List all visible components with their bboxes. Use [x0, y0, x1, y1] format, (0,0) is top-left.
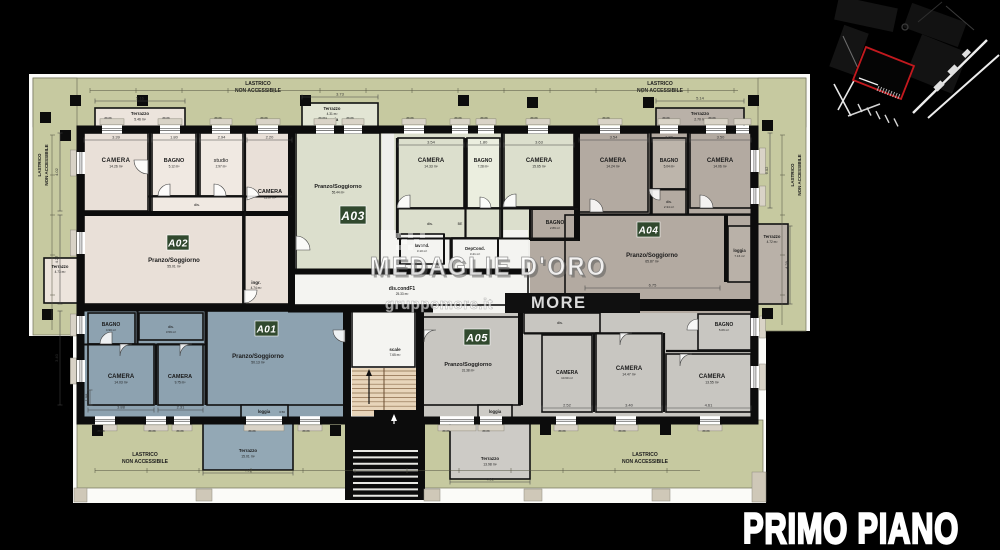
svg-text:7.65 m²: 7.65 m² [390, 353, 401, 357]
svg-text:88 88: 88 88 [709, 116, 716, 120]
svg-text:Terrazzo: Terrazzo [324, 106, 341, 111]
svg-text:5.46 m²: 5.46 m² [134, 118, 146, 122]
svg-text:88 88: 88 88 [559, 429, 566, 433]
svg-text:50.13 m²: 50.13 m² [251, 361, 265, 365]
svg-text:Pranzo/Soggiorno: Pranzo/Soggiorno [232, 354, 284, 360]
svg-text:15.65 m²: 15.65 m² [532, 165, 546, 169]
svg-text:3.50: 3.50 [279, 410, 285, 414]
svg-text:10.60 m²: 10.60 m² [561, 376, 573, 380]
svg-text:dis.: dis. [427, 221, 433, 226]
svg-text:14.24 m²: 14.24 m² [606, 165, 620, 169]
svg-text:88 88: 88 88 [261, 116, 268, 120]
svg-text:2.89 m²: 2.89 m² [550, 226, 560, 230]
svg-text:A02: A02 [167, 239, 188, 250]
svg-text:MEDAGLIE D'ORO: MEDAGLIE D'ORO [370, 253, 607, 281]
svg-text:88 88: 88 88 [531, 116, 538, 120]
svg-text:dis.: dis. [666, 199, 672, 204]
svg-text:14.26 m²: 14.26 m² [109, 165, 123, 169]
svg-text:dis.: dis. [168, 324, 174, 329]
svg-text:88 88: 88 88 [407, 116, 414, 120]
svg-text:5.06 m²: 5.06 m² [719, 328, 729, 332]
svg-text:88 88: 88 88 [105, 116, 112, 120]
svg-text:7.28 m²: 7.28 m² [478, 165, 489, 169]
svg-text:NON ACCESSIBILE: NON ACCESSIBILE [797, 154, 802, 195]
svg-text:NON ACCESSIBILE: NON ACCESSIBILE [44, 144, 49, 185]
svg-text:loggia: loggia [258, 409, 271, 414]
svg-text:A03: A03 [340, 209, 365, 223]
svg-text:3.39: 3.39 [112, 135, 121, 140]
svg-text:88 88: 88 88 [149, 429, 156, 433]
svg-text:Terrazzo: Terrazzo [691, 111, 709, 116]
svg-text:CAMERA: CAMERA [168, 374, 192, 380]
svg-text:2.20: 2.20 [266, 135, 275, 140]
svg-text:3.50: 3.50 [717, 135, 726, 140]
svg-text:5.14: 5.14 [696, 96, 705, 101]
svg-text:PRIMO PIANO: PRIMO PIANO [743, 504, 959, 550]
svg-text:1.80: 1.80 [665, 135, 674, 140]
svg-text:88 88: 88 88 [481, 116, 488, 120]
svg-text:LASTRICO: LASTRICO [632, 452, 658, 458]
svg-text:6.75: 6.75 [649, 283, 658, 288]
svg-text:15.01 m²: 15.01 m² [241, 455, 255, 459]
svg-text:3.40: 3.40 [625, 403, 634, 408]
svg-text:loggia: loggia [489, 409, 502, 414]
svg-text:55.44 m²: 55.44 m² [332, 191, 345, 195]
svg-text:4.02: 4.02 [54, 167, 59, 176]
svg-text:CAMERA: CAMERA [526, 158, 553, 164]
svg-text:7.16 m²: 7.16 m² [734, 254, 744, 258]
svg-text:9.75 m²: 9.75 m² [175, 381, 186, 385]
svg-text:NON ACCESSIBILE: NON ACCESSIBILE [637, 88, 684, 94]
svg-text:88 88: 88 88 [703, 429, 710, 433]
svg-text:88 88: 88 88 [177, 429, 184, 433]
svg-text:14.06 m²: 14.06 m² [713, 165, 727, 169]
svg-text:88 88: 88 88 [603, 116, 610, 120]
svg-text:Pranzo/Soggiorno: Pranzo/Soggiorno [148, 258, 200, 264]
svg-text:88 88: 88 88 [455, 116, 462, 120]
svg-text:BAGNO: BAGNO [474, 158, 493, 164]
svg-text:1.80: 1.80 [480, 140, 489, 145]
svg-text:88 88: 88 88 [619, 429, 626, 433]
svg-text:CAMERA: CAMERA [616, 366, 643, 372]
svg-text:55.01 m²: 55.01 m² [167, 265, 181, 269]
svg-text:4.27: 4.27 [54, 255, 59, 264]
svg-text:Terrazzo: Terrazzo [131, 111, 149, 116]
svg-text:dis.: dis. [557, 320, 563, 325]
svg-text:5.16: 5.16 [136, 96, 145, 101]
svg-text:3.73: 3.73 [336, 92, 345, 97]
svg-text:Terrazzo: Terrazzo [481, 456, 499, 461]
svg-text:65.87 m²: 65.87 m² [645, 260, 659, 264]
svg-text:NON ACCESSIBILE: NON ACCESSIBILE [235, 88, 282, 94]
svg-text:4.92: 4.92 [486, 477, 495, 482]
svg-text:LASTRICO: LASTRICO [245, 81, 271, 87]
svg-text:studio: studio [214, 158, 229, 164]
svg-text:DepCond.: DepCond. [465, 246, 485, 251]
svg-text:A05: A05 [465, 332, 488, 344]
svg-text:CAMERA: CAMERA [102, 158, 131, 164]
svg-text:A01: A01 [256, 325, 277, 336]
svg-text:4.92: 4.92 [244, 468, 253, 473]
svg-text:88 88: 88 88 [303, 429, 310, 433]
svg-text:loggia: loggia [733, 248, 746, 253]
svg-text:3.54: 3.54 [427, 140, 436, 145]
svg-text:3.54: 3.54 [610, 135, 619, 140]
svg-text:14.03 m²: 14.03 m² [114, 381, 128, 385]
svg-text:2.31: 2.31 [177, 405, 186, 410]
svg-text:13.98 m²: 13.98 m² [483, 463, 497, 467]
svg-text:2.52: 2.52 [563, 403, 572, 408]
svg-text:LASTRICO: LASTRICO [132, 452, 158, 458]
svg-text:dis.: dis. [194, 202, 200, 207]
svg-text:3.59 m²: 3.59 m² [166, 330, 176, 334]
svg-text:6.02: 6.02 [764, 166, 769, 175]
svg-text:LASTRICO: LASTRICO [790, 163, 795, 186]
svg-text:CAMERA: CAMERA [707, 158, 734, 164]
svg-text:4.61: 4.61 [705, 403, 714, 408]
svg-text:Pranzo/Soggiorno: Pranzo/Soggiorno [314, 184, 362, 190]
svg-text:NON ACCESSIBILE: NON ACCESSIBILE [122, 459, 169, 465]
svg-text:LASTRICO: LASTRICO [37, 153, 42, 176]
svg-text:gruppomore.it: gruppomore.it [385, 296, 493, 313]
svg-text:MORE: MORE [531, 294, 587, 312]
svg-text:1.98: 1.98 [84, 393, 89, 402]
svg-text:4.29: 4.29 [784, 260, 789, 269]
svg-text:4.90 m²: 4.90 m² [106, 328, 116, 332]
svg-text:88 88: 88 88 [319, 116, 326, 120]
svg-text:88 88: 88 88 [163, 116, 170, 120]
svg-text:31.38 m²: 31.38 m² [462, 369, 475, 373]
svg-text:4.74 m²: 4.74 m² [251, 286, 262, 290]
svg-text:13.55 m²: 13.55 m² [705, 381, 719, 385]
svg-text:2.34 m²: 2.34 m² [664, 205, 674, 209]
svg-text:5.04 m²: 5.04 m² [664, 165, 675, 169]
svg-text:CAMERA: CAMERA [600, 158, 627, 164]
svg-text:A04: A04 [638, 226, 659, 237]
svg-text:3.63: 3.63 [535, 140, 544, 145]
svg-text:14.47 m²: 14.47 m² [622, 373, 636, 377]
svg-text:CAMERA: CAMERA [108, 374, 135, 380]
svg-text:88 88: 88 88 [215, 116, 222, 120]
svg-text:2.97 m²: 2.97 m² [216, 165, 227, 169]
svg-text:CAMERA: CAMERA [258, 189, 282, 195]
svg-text:Pranzo/Soggiorno: Pranzo/Soggiorno [444, 362, 492, 368]
svg-text:Pranzo/Soggiorno: Pranzo/Soggiorno [626, 253, 678, 259]
svg-text:BAGNO: BAGNO [660, 158, 679, 164]
svg-text:88 88: 88 88 [663, 116, 670, 120]
svg-text:88 88: 88 88 [483, 429, 490, 433]
svg-text:NON ACCESSIBILE: NON ACCESSIBILE [622, 459, 669, 465]
svg-text:4.31 m²: 4.31 m² [327, 112, 338, 116]
svg-text:88 88: 88 88 [443, 429, 450, 433]
svg-text:88 88: 88 88 [98, 429, 105, 433]
svg-text:88 88: 88 88 [249, 429, 256, 433]
svg-text:Terrazzo: Terrazzo [239, 448, 257, 453]
svg-text:14.33 m²: 14.33 m² [424, 165, 438, 169]
svg-text:BE: BE [458, 222, 463, 226]
svg-text:LASTRICO: LASTRICO [647, 81, 673, 87]
svg-text:88 88: 88 88 [347, 116, 354, 120]
svg-text:4.72 m²: 4.72 m² [767, 240, 778, 244]
svg-text:ingr.: ingr. [251, 280, 261, 285]
svg-text:3.40: 3.40 [54, 353, 59, 362]
svg-text:2.94: 2.94 [218, 135, 227, 140]
svg-text:CAMERA: CAMERA [699, 374, 726, 380]
svg-text:CAMERA: CAMERA [418, 158, 445, 164]
svg-text:Terrazzo: Terrazzo [764, 234, 781, 239]
svg-text:3.88: 3.88 [117, 405, 126, 410]
svg-text:5.12 m²: 5.12 m² [169, 165, 180, 169]
svg-text:scale: scale [389, 347, 401, 352]
svg-text:1.80: 1.80 [170, 135, 179, 140]
svg-text:BAGNO: BAGNO [164, 158, 185, 164]
